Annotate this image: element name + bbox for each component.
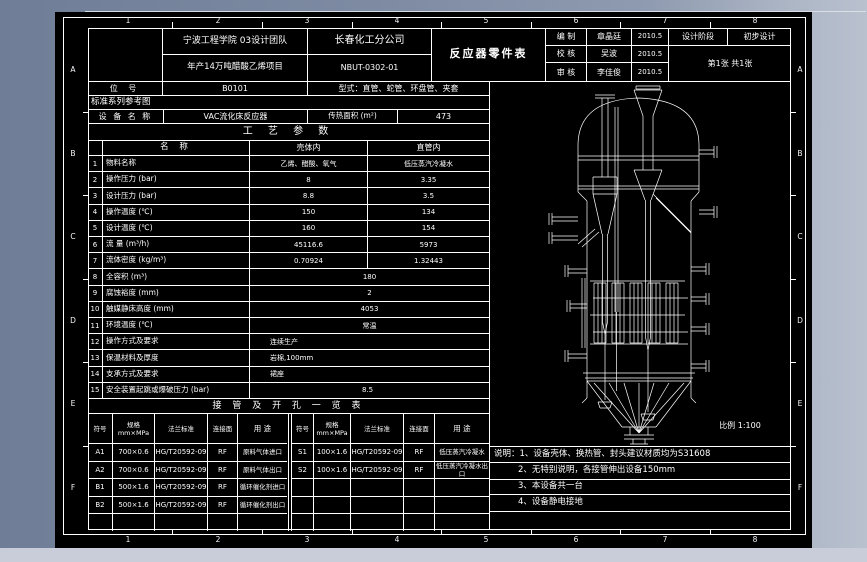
equip-label: 设 备 名 称 [88,110,164,124]
nozzle-cell [435,497,489,515]
param-tube-value: 1.32443 [368,253,489,269]
process-table-title: 工 艺 参 数 [88,124,489,141]
note-line: 4、设备静电接地 [490,495,791,512]
param-no: 10 [88,302,103,318]
bottom-strip [0,548,867,562]
nozzle-cell: 低压蒸汽冷凝水 [435,444,489,462]
zone-tick [710,529,711,535]
nozzle-cell: 原料气体出口 [238,462,287,480]
param-name: 全容积 (m³) [103,269,250,285]
note-line: 说明：1、设备壳体、换热管、封头建议材质均为S31608 [490,446,791,463]
nozzle-cell: 100×1.6 [314,462,351,480]
nozzle-cell: 500×1.6 [113,497,155,515]
nozzle-cell: 100×1.6 [314,444,351,462]
design-stage-label: 设计阶段 [669,28,728,46]
sign-date: 2010.5 [632,46,669,64]
company-name: 长春化工分公司 [308,28,432,55]
zone-col-number: 6 [568,16,584,27]
zone-tick [791,195,796,196]
nozzle-cell [314,479,351,497]
scale-label: 比例 1:100 [695,420,785,432]
param-no: 1 [88,156,103,172]
zone-col-number: 3 [299,535,315,546]
nozzle-col-header: 符号 [88,414,113,444]
nozzle-table-title: 接 管 及 开 孔 一 览 表 [88,399,489,414]
type-text: 型式：直管、蛇管、环盘管、夹套 [308,82,489,96]
param-shell-value: 160 [250,221,368,237]
param-name: 腐蚀裕度 (mm) [103,286,250,302]
param-no: 5 [88,221,103,237]
nozzle-col-header: 连接面 [208,414,238,444]
param-merged-value: 180 [250,269,489,285]
nozzle-cell [113,514,155,531]
param-no: 2 [88,172,103,188]
param-name: 设计温度 (℃) [103,221,250,237]
zone-tick [441,22,442,28]
zone-row-letter: F [793,482,807,494]
nozzle-cell: RF [404,444,435,462]
zone-tick [531,22,532,28]
param-no: 13 [88,350,103,366]
nozzle-cell: HG/T20592-09 [155,462,208,480]
zone-tick [352,529,353,535]
process-col-tube: 直管内 [368,141,489,156]
process-col-name: 名 称 [103,141,250,156]
nozzle-cell [208,514,238,531]
param-name: 操作方式及要求 [103,334,250,350]
table-divider-line [288,414,289,531]
param-tube-value: 3.5 [368,188,489,204]
zone-tick [791,279,796,280]
param-no: 8 [88,269,103,285]
nozzle-col-header: 符号 [292,414,314,444]
param-merged-value: 连续生产 [250,334,489,350]
nozzle-cell [292,497,314,515]
zone-row-letter: A [66,64,80,76]
nozzle-cell: HG/T20592-09 [351,444,404,462]
sign-name: 李佳俊 [587,63,632,81]
nozzle-cell: HG/T20592-09 [155,444,208,462]
nozzle-cell: 700×0.6 [113,444,155,462]
nozzle-cell [314,497,351,515]
process-col-index [88,141,103,156]
sign-role: 审 核 [546,63,587,81]
design-stage-value: 初步设计 [728,28,791,46]
note-line: 2、无特别说明，各接管伸出设备150mm [490,463,791,480]
zone-col-number: 7 [657,16,673,27]
nozzle-col-header: 用 途 [238,414,287,444]
project-name: 年产14万吨醋酸乙烯项目 [163,55,308,81]
param-tube-value: 5973 [368,237,489,253]
nozzle-cell [404,514,435,531]
logo-cell [88,28,163,81]
param-merged-value: 8.5 [250,383,489,399]
sign-role: 编 制 [546,28,587,46]
nozzle-cell [292,479,314,497]
param-merged-value: 裙座 [250,367,489,383]
note-line: 3、本设备共一台 [490,480,791,495]
zone-tick [83,195,88,196]
zone-tick [83,362,88,363]
zone-tick [83,279,88,280]
zone-tick [172,529,173,535]
zone-row-letter: A [793,64,807,76]
sign-role: 校 核 [546,46,587,64]
sign-date: 2010.5 [632,63,669,81]
nozzle-cell: 低压蒸汽冷凝水出口 [435,462,489,480]
zone-tick [441,529,442,535]
zone-tick [791,446,796,447]
param-name: 设计压力 (bar) [103,188,250,204]
zone-tick [83,112,88,113]
zone-tick [531,529,532,535]
zone-col-number: 1 [120,535,136,546]
zone-tick [83,446,88,447]
nozzle-cell [435,479,489,497]
nozzle-cell: A2 [88,462,113,480]
zone-row-letter: C [793,231,807,243]
param-shell-value: 0.70924 [250,253,368,269]
nozzle-cell: HG/T20592-09 [155,479,208,497]
nozzle-cell [351,514,404,531]
param-name: 安全装置起跳或爆破压力 (bar) [103,383,250,399]
heat-area-label: 传热面积 (m²) [308,110,398,124]
nozzle-cell [155,514,208,531]
param-no: 9 [88,286,103,302]
nozzle-cell: RF [208,444,238,462]
nozzle-cell: B2 [88,497,113,515]
zone-col-number: 6 [568,535,584,546]
reactor-drawing [490,82,791,447]
nozzle-cell: S2 [292,462,314,480]
sign-date: 2010.5 [632,28,669,46]
zone-col-number: 7 [657,535,673,546]
param-merged-value: 4053 [250,302,489,318]
nozzle-cell: 500×1.6 [113,479,155,497]
drawing-area: 比例 1:100 [490,81,791,446]
tag-value: B0101 [163,82,308,96]
param-no: 12 [88,334,103,350]
cad-viewport[interactable]: 宁波工程学院 03设计团队 年产14万吨醋酸乙烯项目 长春化工分公司 NBUT-… [0,0,867,562]
param-name: 触媒静床高度 (mm) [103,302,250,318]
zone-tick [172,22,173,28]
sheet-count: 第1张 共1张 [669,46,791,81]
zone-col-number: 8 [747,535,763,546]
param-no: 7 [88,253,103,269]
nozzle-cell: 循环催化剂进口 [238,479,287,497]
param-name: 流体密度 (kg/m³) [103,253,250,269]
param-shell-value: 8.8 [250,188,368,204]
nozzle-cell: RF [208,479,238,497]
zone-row-letter: C [66,231,80,243]
sign-name: 章晶廷 [587,28,632,46]
param-no: 4 [88,205,103,221]
param-merged-value: 2 [250,286,489,302]
param-shell-value: 150 [250,205,368,221]
zone-tick [352,22,353,28]
process-col-shell: 壳体内 [250,141,368,156]
nozzle-cell [404,497,435,515]
nozzle-col-header: 用 途 [435,414,489,444]
nozzle-cell: S1 [292,444,314,462]
nozzle-cell [292,514,314,531]
nozzle-col-header: 规格 mm×MPa [314,414,351,444]
zone-col-number: 1 [120,16,136,27]
tag-label: 位 号 [88,82,163,96]
zone-row-letter: F [66,482,80,494]
zone-tick [710,22,711,28]
drawing-number: NBUT-0302-01 [308,55,432,81]
param-tube-value: 154 [368,221,489,237]
param-name: 操作压力 (bar) [103,172,250,188]
param-shell-value: 45116.6 [250,237,368,253]
zone-col-number: 4 [389,16,405,27]
tables-region: 位 号 B0101 型式：直管、蛇管、环盘管、夹套 标准系列参考图 设 备 名 … [88,81,490,530]
nozzle-cell: RF [208,462,238,480]
nozzle-cell: A1 [88,444,113,462]
zone-row-letter: B [66,148,80,160]
sheet-title: 反应器零件表 [432,28,546,81]
zone-row-letter: D [66,315,80,327]
param-name: 支承方式及要求 [103,367,250,383]
param-name: 环境温度 (℃) [103,318,250,334]
param-tube-value: 134 [368,205,489,221]
zone-col-number: 5 [478,16,494,27]
nozzle-cell: RF [208,497,238,515]
param-no: 14 [88,367,103,383]
nozzle-cell [88,514,113,531]
param-no: 6 [88,237,103,253]
org-name: 宁波工程学院 03设计团队 [163,28,308,55]
zone-col-number: 4 [389,535,405,546]
nozzle-cell: HG/T20592-09 [155,497,208,515]
nozzle-cell: 循环催化剂出口 [238,497,287,515]
param-merged-value: 岩棉,100mm [250,350,489,366]
nozzle-cell [314,514,351,531]
param-merged-value: 常温 [250,318,489,334]
zone-tick [791,112,796,113]
nozzle-col-header: 连接面 [404,414,435,444]
param-no: 11 [88,318,103,334]
sign-name: 吴波 [587,46,632,64]
nozzle-cell: HG/T20592-09 [351,462,404,480]
equip-value: VAC流化床反应器 [164,110,308,124]
param-name: 保温材料及厚度 [103,350,250,366]
param-tube-value: 低压蒸汽冷凝水 [368,156,489,172]
zone-row-letter: B [793,148,807,160]
nozzle-cell [351,479,404,497]
param-name: 物料名称 [103,156,250,172]
heat-area-value: 473 [398,110,489,124]
param-no: 3 [88,188,103,204]
zone-tick [620,529,621,535]
nozzle-cell: B1 [88,479,113,497]
nozzle-col-header: 法兰标准 [351,414,404,444]
nozzle-cell: 700×0.6 [113,462,155,480]
zone-col-number: 2 [210,535,226,546]
zone-col-number: 8 [747,16,763,27]
zone-tick [262,22,263,28]
zone-row-letter: D [793,315,807,327]
param-shell-value: 8 [250,172,368,188]
standard-series: 标准系列参考图 [88,96,489,110]
zone-tick [262,529,263,535]
param-tube-value: 3.35 [368,172,489,188]
nozzle-cell: RF [404,462,435,480]
zone-col-number: 5 [478,535,494,546]
param-shell-value: 乙烯、醋酸、氧气 [250,156,368,172]
param-name: 流 量 (m³/h) [103,237,250,253]
zone-row-letter: E [66,398,80,410]
zone-col-number: 2 [210,16,226,27]
zone-tick [620,22,621,28]
zone-row-letter: E [793,398,807,410]
zone-col-number: 3 [299,16,315,27]
nozzle-col-header: 规格 mm×MPa [113,414,155,444]
nozzle-cell [404,479,435,497]
param-no: 15 [88,383,103,399]
param-name: 操作温度 (℃) [103,205,250,221]
nozzle-cell [351,497,404,515]
nozzle-col-header: 法兰标准 [155,414,208,444]
zone-tick [791,362,796,363]
nozzle-cell: 原料气体进口 [238,444,287,462]
